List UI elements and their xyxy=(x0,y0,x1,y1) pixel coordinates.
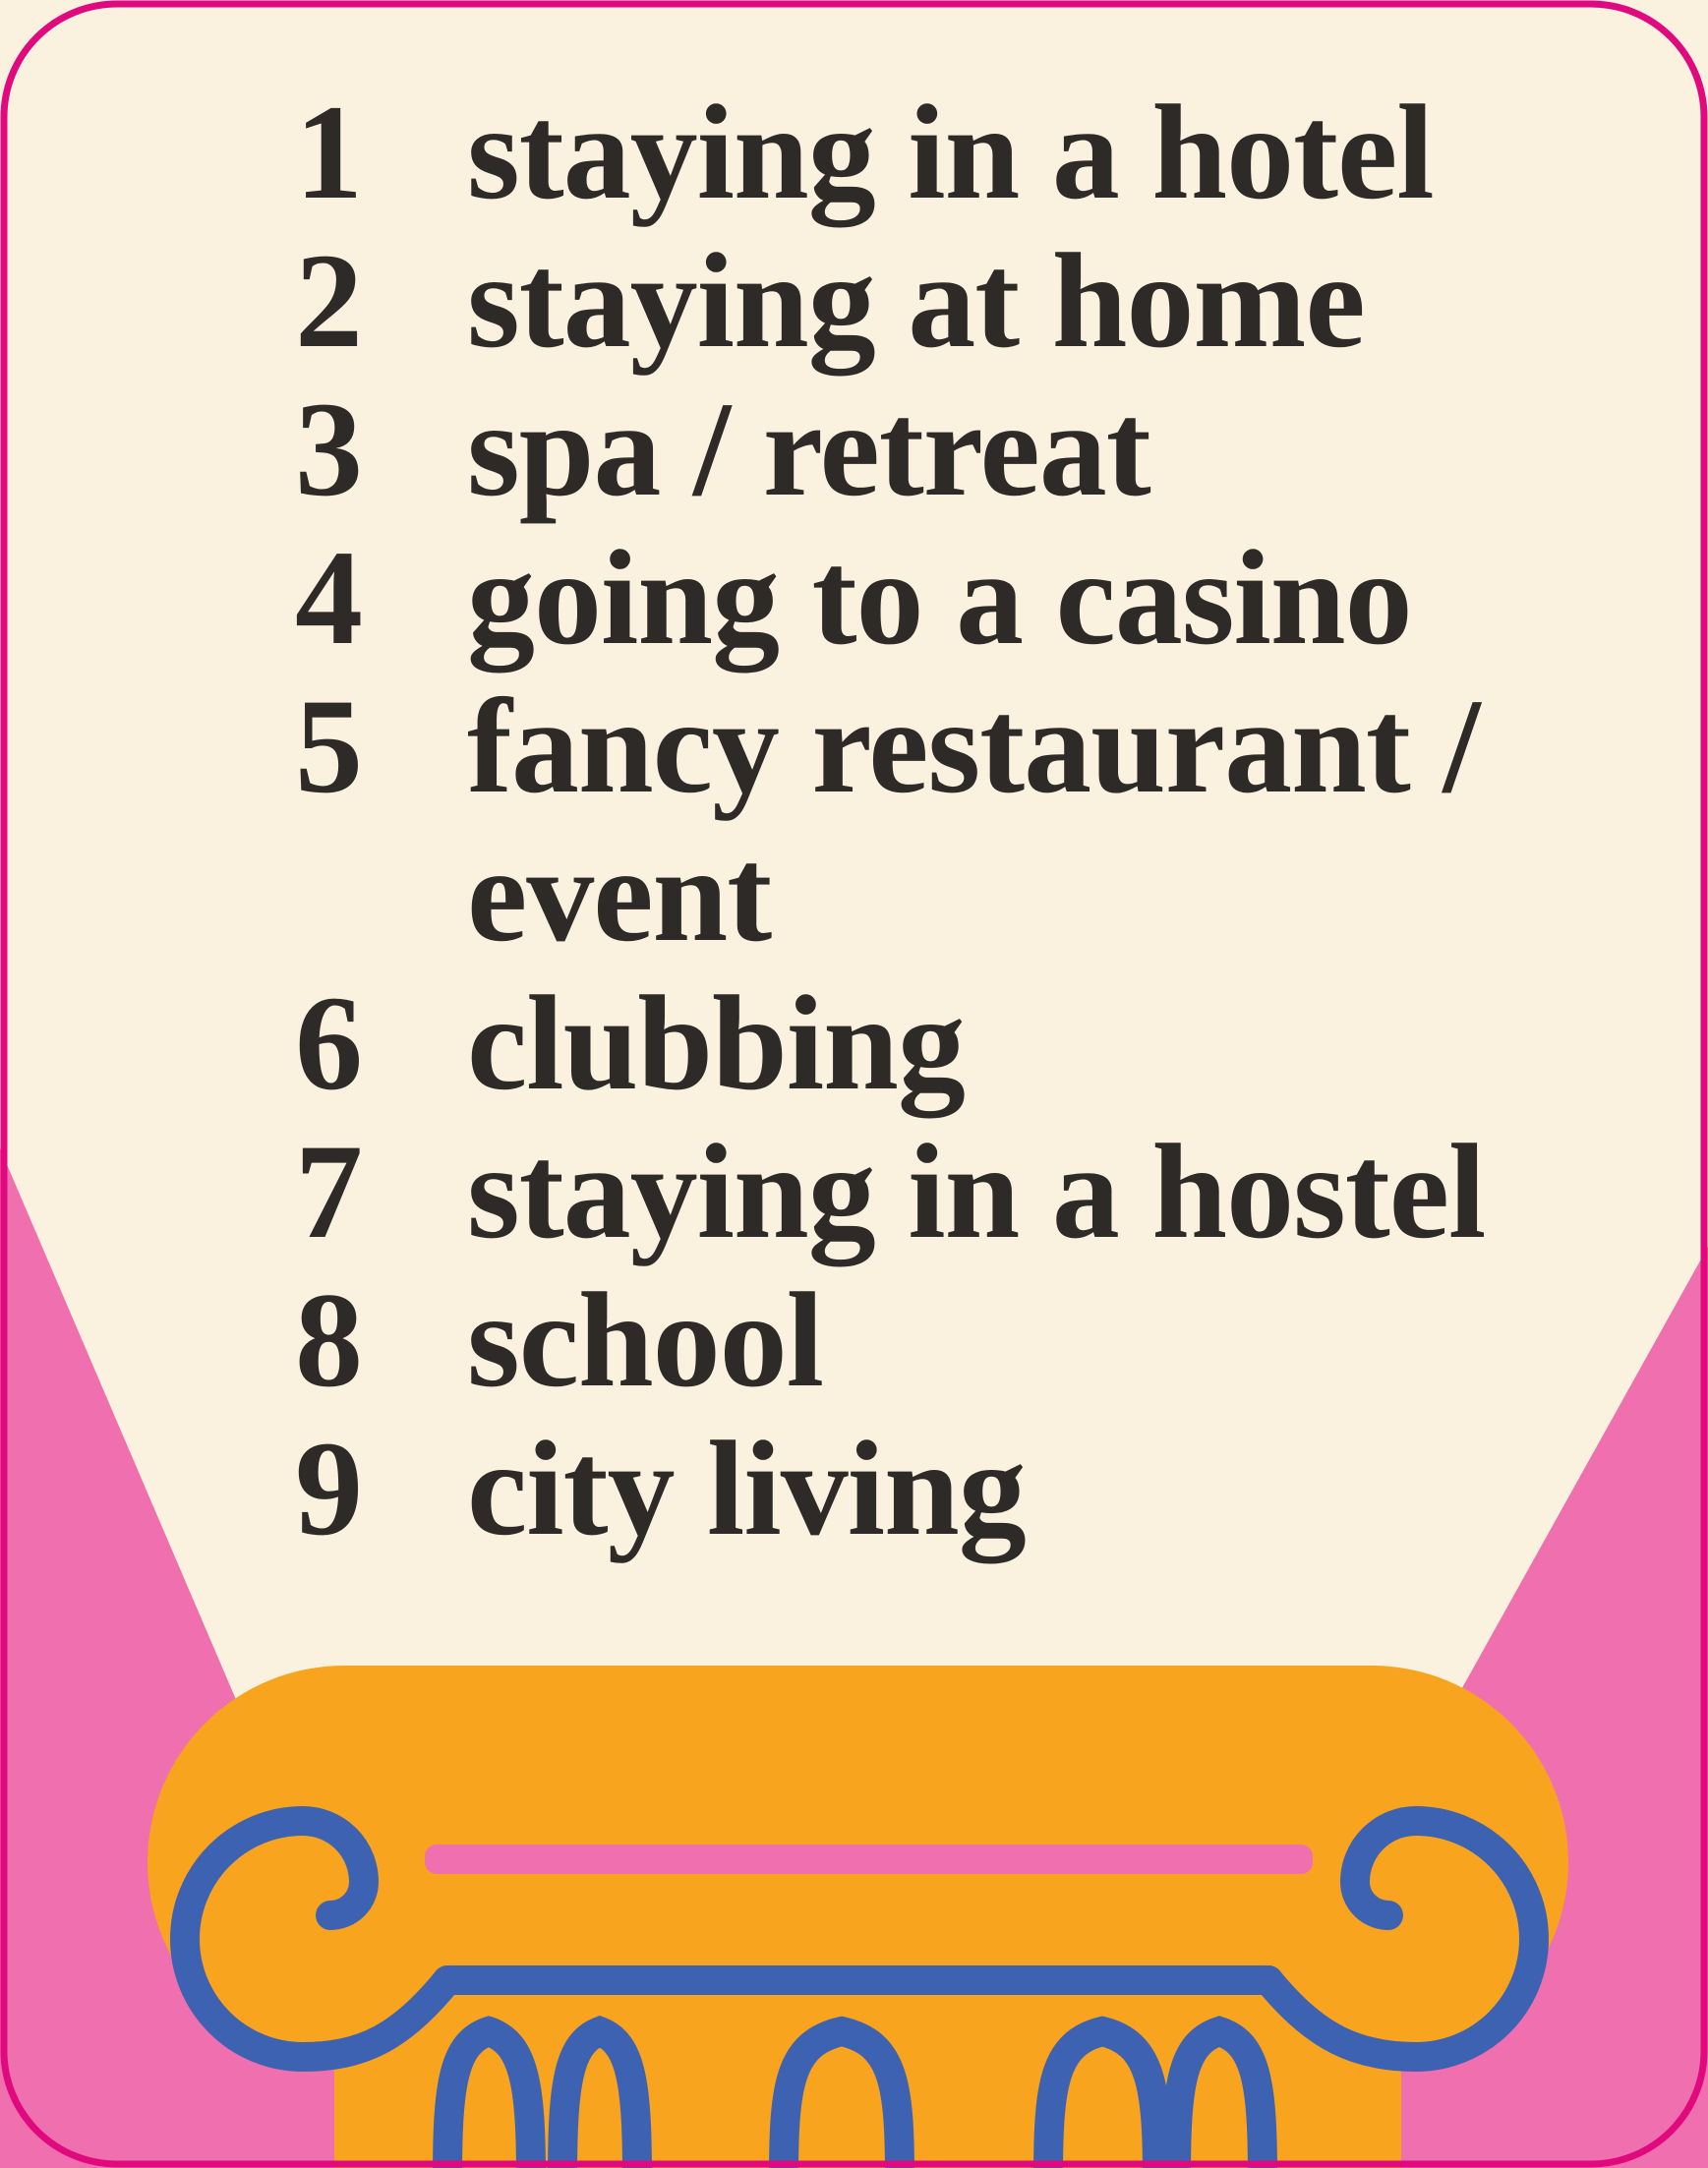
item-label: staying in a hotel xyxy=(467,78,1434,226)
item-number: 4 xyxy=(295,523,467,672)
item-label: school xyxy=(467,1265,823,1414)
item-label: fancy restaurant / event xyxy=(467,672,1480,968)
item-number: 1 xyxy=(295,78,467,226)
item-label: city living xyxy=(467,1414,1026,1562)
list-item: 3 spa / retreat xyxy=(295,375,1652,523)
list-item: 5 fancy restaurant / event xyxy=(295,672,1652,968)
list-item: 8 school xyxy=(295,1265,1652,1414)
item-number: 5 xyxy=(295,672,467,820)
list-item: 9 city living xyxy=(295,1414,1652,1562)
item-number: 3 xyxy=(295,375,467,523)
list-item: 1 staying in a hotel xyxy=(295,78,1652,226)
item-label: clubbing xyxy=(467,968,965,1117)
item-label: staying at home xyxy=(467,226,1365,375)
list-item: 6 clubbing xyxy=(295,968,1652,1117)
item-number: 8 xyxy=(295,1265,467,1414)
item-label: going to a casino xyxy=(467,523,1412,672)
list-item: 4 going to a casino xyxy=(295,523,1652,672)
capital-pink-stripe xyxy=(425,1845,1313,1874)
item-number: 6 xyxy=(295,968,467,1117)
item-label: staying in a hostel xyxy=(467,1117,1485,1265)
item-number: 7 xyxy=(295,1117,467,1265)
item-label: spa / retreat xyxy=(467,375,1150,523)
list-item: 7 staying in a hostel xyxy=(295,1117,1652,1265)
options-list: 1 staying in a hotel 2 staying at home 3… xyxy=(295,78,1652,1562)
list-item: 2 staying at home xyxy=(295,226,1652,375)
game-card: 1 staying in a hotel 2 staying at home 3… xyxy=(0,0,1708,2168)
item-number: 9 xyxy=(295,1414,467,1562)
item-number: 2 xyxy=(295,226,467,375)
